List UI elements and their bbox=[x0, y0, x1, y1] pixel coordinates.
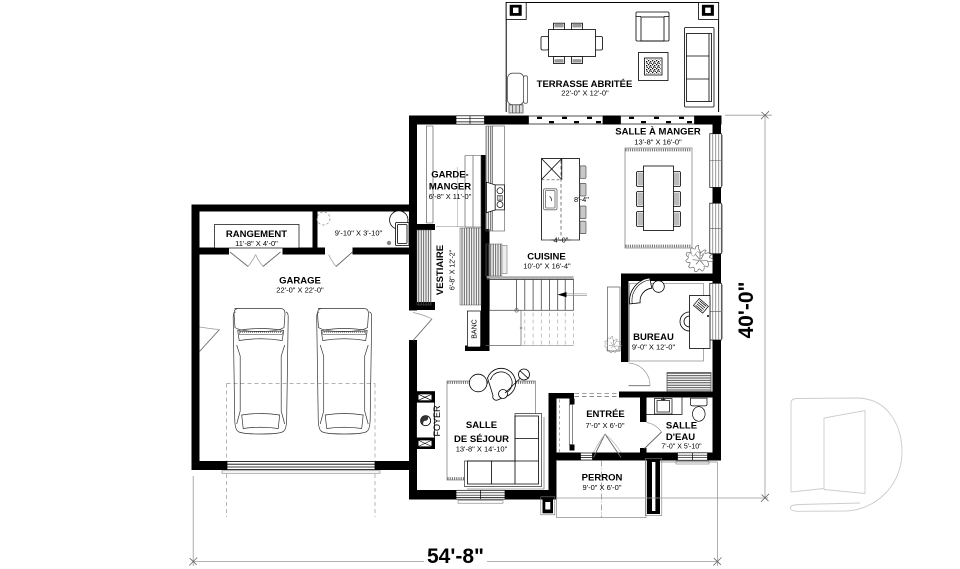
svg-text:D'EAU: D'EAU bbox=[666, 432, 695, 443]
svg-text:13'-8" X 16'-0": 13'-8" X 16'-0" bbox=[634, 138, 682, 147]
svg-text:BUREAU: BUREAU bbox=[633, 332, 674, 343]
svg-text:DE SÉJOUR: DE SÉJOUR bbox=[454, 434, 509, 445]
svg-text:7'-0" X 6'-0": 7'-0" X 6'-0" bbox=[585, 421, 624, 430]
svg-text:ENTRÉE: ENTRÉE bbox=[586, 409, 625, 420]
svg-text:54'-8": 54'-8" bbox=[427, 545, 484, 568]
svg-text:BANC: BANC bbox=[472, 319, 479, 338]
svg-text:22'-0" X 22'-0": 22'-0" X 22'-0" bbox=[276, 286, 324, 295]
svg-text:9'-0" X 6'-0": 9'-0" X 6'-0" bbox=[582, 483, 621, 492]
svg-text:6'-8" X 12'-2": 6'-8" X 12'-2" bbox=[450, 249, 457, 290]
svg-text:11'-8" X 4'-0": 11'-8" X 4'-0" bbox=[235, 239, 278, 248]
svg-text:SALLE À MANGER: SALLE À MANGER bbox=[615, 127, 701, 138]
svg-text:40'-0": 40'-0" bbox=[735, 282, 758, 339]
svg-text:9'-10" X 3'-10": 9'-10" X 3'-10" bbox=[335, 229, 383, 238]
svg-text:SALLE: SALLE bbox=[466, 420, 497, 431]
svg-text:6'-8" X 11'-0": 6'-8" X 11'-0" bbox=[429, 192, 472, 201]
svg-text:22'-0" X 12'-0": 22'-0" X 12'-0" bbox=[561, 89, 609, 98]
svg-text:10'-0" X 16'-4": 10'-0" X 16'-4" bbox=[523, 262, 571, 271]
svg-text:GARDE-: GARDE- bbox=[431, 170, 468, 181]
svg-text:13'-8" X 14'-10": 13'-8" X 14'-10" bbox=[456, 445, 508, 454]
svg-text:8'-4": 8'-4" bbox=[574, 195, 589, 204]
svg-text:MANGER: MANGER bbox=[429, 182, 471, 193]
svg-text:4'-0": 4'-0" bbox=[554, 236, 569, 245]
svg-text:FOYER: FOYER bbox=[432, 405, 442, 437]
svg-text:VESTIAIRE: VESTIAIRE bbox=[435, 245, 446, 295]
svg-text:9'-0" X 12'-0": 9'-0" X 12'-0" bbox=[632, 343, 676, 352]
svg-text:SALLE: SALLE bbox=[666, 421, 697, 432]
svg-text:7'-0" X 5'-10": 7'-0" X 5'-10" bbox=[661, 444, 702, 451]
svg-text:PERRON: PERRON bbox=[582, 473, 623, 484]
